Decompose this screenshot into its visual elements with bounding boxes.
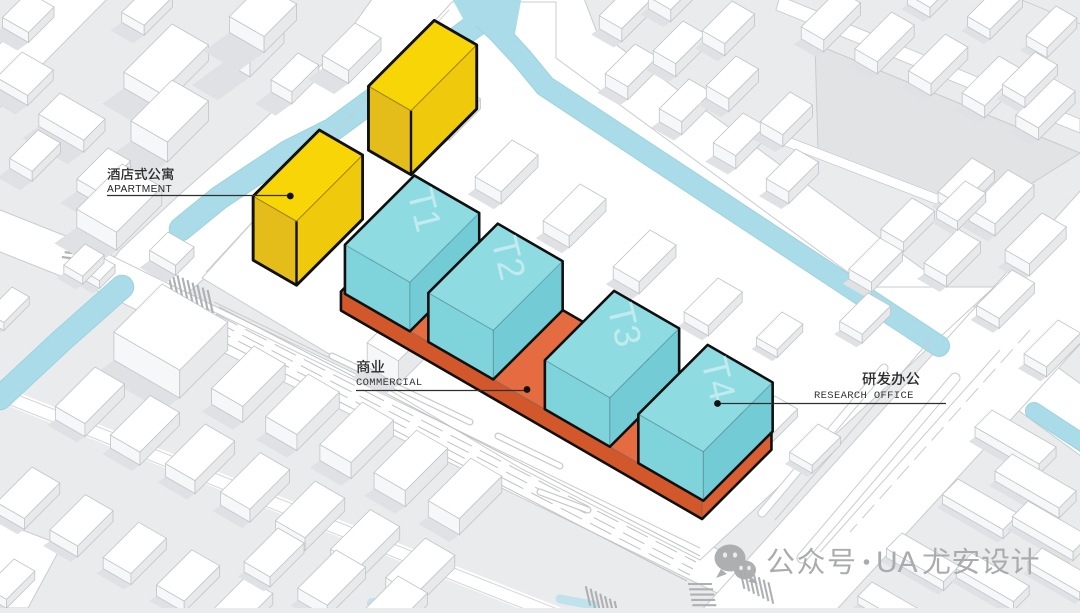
svg-text:UA: UA [876,546,918,579]
svg-text:COMMERCIAL: COMMERCIAL [356,377,423,389]
svg-text:RESEARCH OFFICE: RESEARCH OFFICE [814,390,914,402]
svg-text:APARTMENT: APARTMENT [107,184,172,195]
